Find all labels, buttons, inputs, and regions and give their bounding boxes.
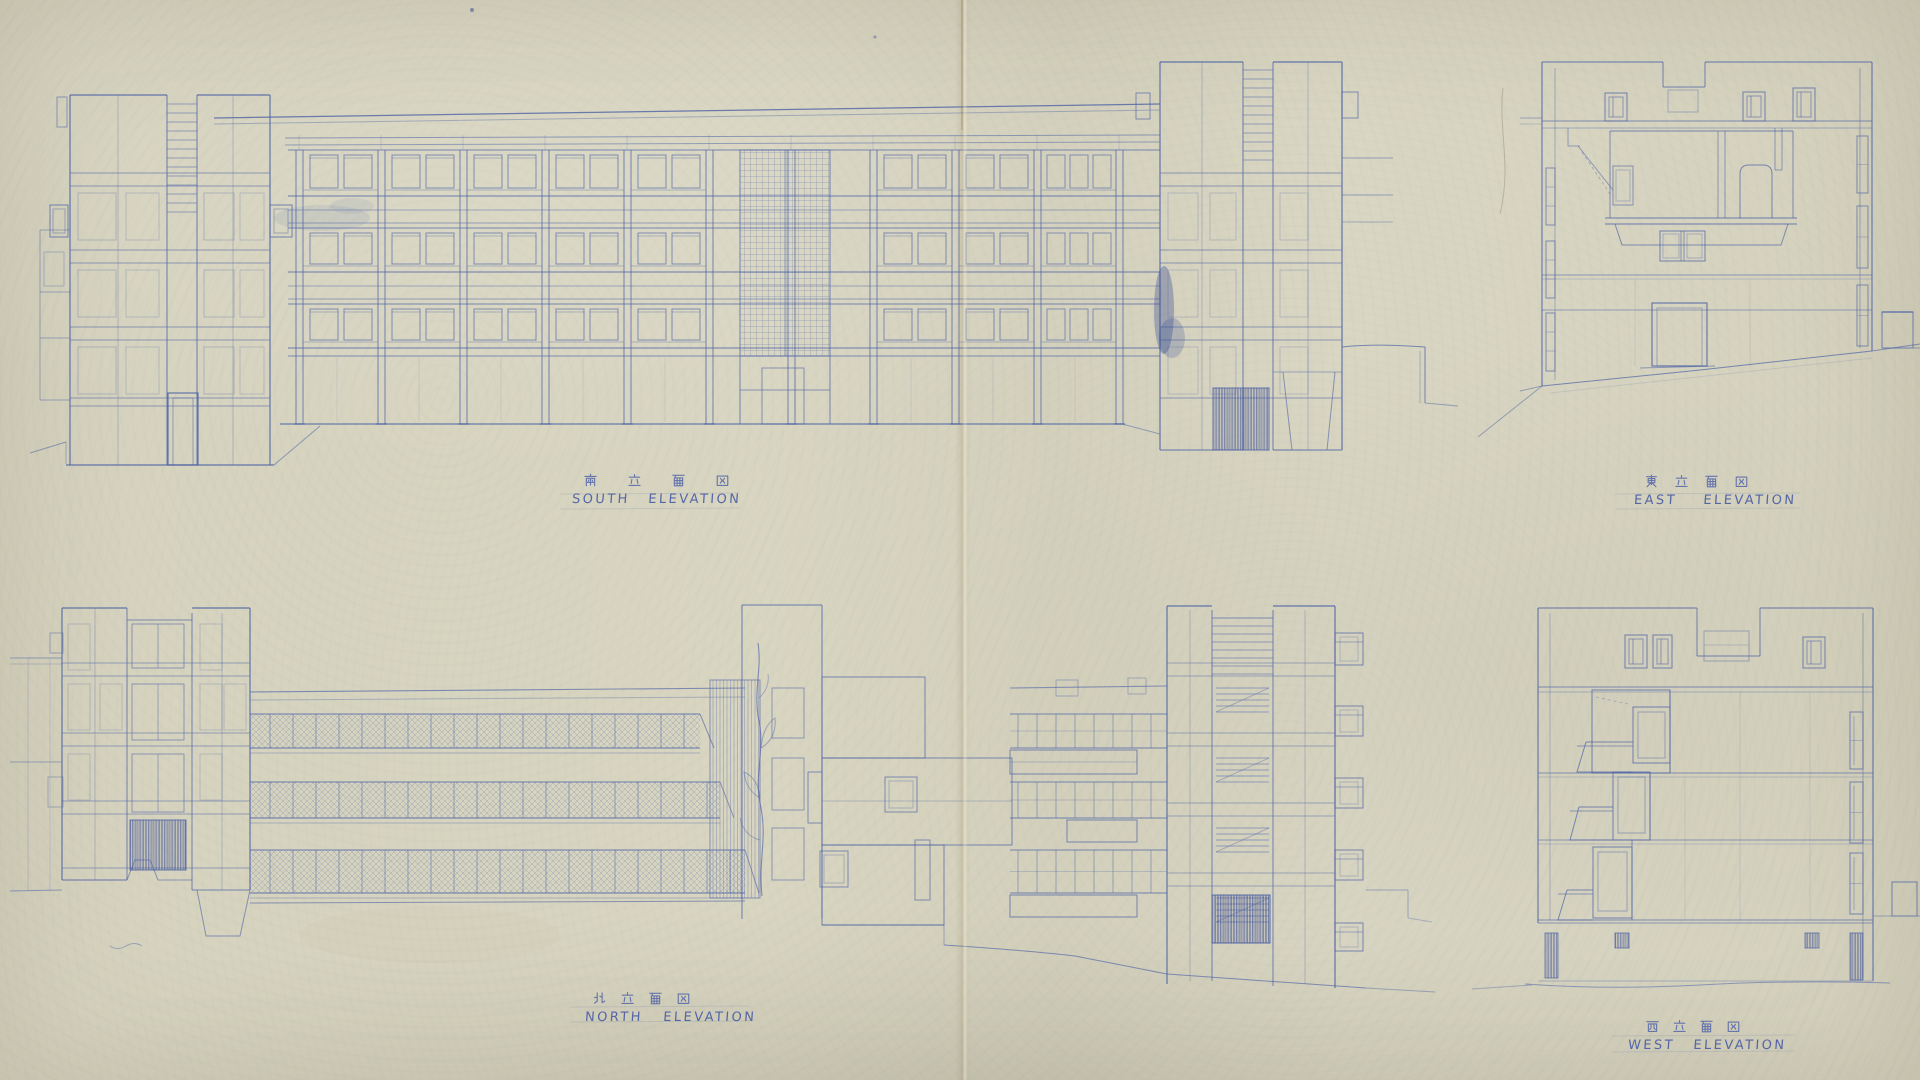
kanji-glyph [715, 473, 730, 488]
north-label-japanese [592, 991, 756, 1006]
kanji-glyph [1704, 474, 1719, 489]
kanji-glyph [592, 991, 607, 1006]
kanji-glyph [1726, 1019, 1741, 1034]
south-label-japanese [583, 473, 741, 488]
kanji-glyph [583, 473, 598, 488]
kanji-glyph [1734, 474, 1749, 489]
kanji-glyph [627, 473, 642, 488]
west-label-english: WEST ELEVATION [1627, 1038, 1786, 1053]
kanji-glyph [671, 473, 686, 488]
kanji-glyph [1644, 474, 1659, 489]
kanji-glyph [1699, 1019, 1714, 1034]
kanji-glyph [676, 991, 691, 1006]
paper-marks [0, 0, 1920, 1080]
kanji-glyph [1674, 474, 1689, 489]
south-elevation-label: SOUTH ELEVATION [572, 473, 741, 507]
kanji-glyph [1672, 1019, 1687, 1034]
east-label-japanese [1644, 474, 1796, 489]
east-elevation-label: EAST ELEVATION [1634, 474, 1796, 508]
north-label-english: NORTH ELEVATION [584, 1010, 756, 1025]
south-label-english: SOUTH ELEVATION [571, 492, 741, 507]
blueprint-sheet: SOUTH ELEVATION EAST ELEVATION NORTH ELE… [0, 0, 1920, 1080]
kanji-glyph [1645, 1019, 1660, 1034]
north-elevation-label: NORTH ELEVATION [585, 991, 756, 1025]
west-elevation-label: WEST ELEVATION [1628, 1019, 1786, 1053]
kanji-glyph [648, 991, 663, 1006]
east-label-english: EAST ELEVATION [1633, 493, 1796, 508]
west-label-japanese [1645, 1019, 1786, 1034]
kanji-glyph [620, 991, 635, 1006]
